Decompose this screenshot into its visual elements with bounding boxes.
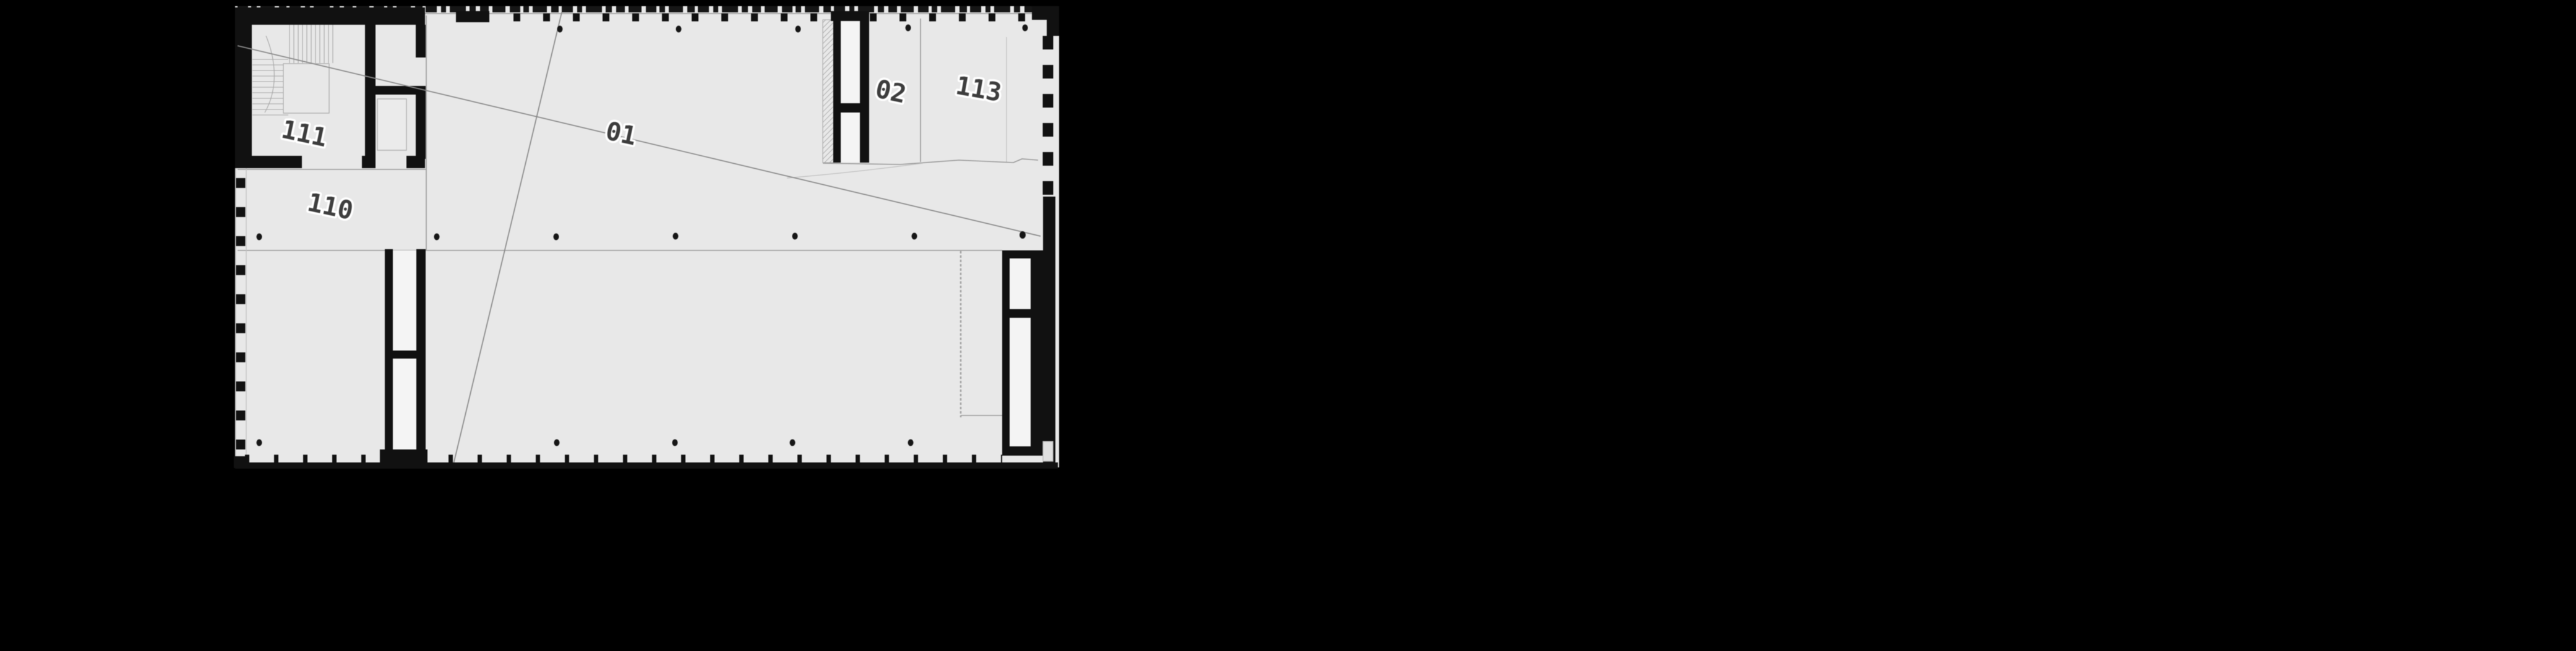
column-dot [673, 233, 679, 240]
stair-landing [283, 64, 329, 113]
top-wall-segment [456, 11, 489, 22]
bottom-right-box [1043, 441, 1053, 461]
column-dot [912, 233, 917, 240]
shaft-outline [377, 99, 406, 150]
screenshot-canvas: 111 110 01 02 113 [0, 0, 2576, 651]
room-label-02: 02 [873, 74, 909, 109]
column-dot [790, 440, 796, 446]
column-dot [554, 234, 559, 240]
column-dot [554, 440, 560, 446]
column-dot [908, 440, 914, 446]
service-core-right [1002, 250, 1043, 456]
column-dot [257, 234, 262, 240]
column-dot [1023, 25, 1028, 32]
core-hatch-strip [823, 20, 833, 163]
column-dot [1020, 231, 1026, 239]
column-dot [676, 26, 682, 33]
column-dot [672, 440, 678, 446]
room-label-01: 01 [603, 116, 639, 151]
floor-area [235, 6, 1059, 467]
column-dot [257, 440, 262, 446]
column-dot [796, 26, 801, 33]
column-dot [434, 234, 440, 240]
column-dot [557, 26, 563, 33]
column-dot [906, 25, 911, 32]
column-dot [792, 233, 798, 240]
floor-plan-drawing: 111 110 01 02 113 [0, 0, 2576, 651]
service-core-top-right [823, 11, 869, 163]
right-edge-wall [1043, 197, 1055, 465]
service-core-left [380, 249, 427, 464]
